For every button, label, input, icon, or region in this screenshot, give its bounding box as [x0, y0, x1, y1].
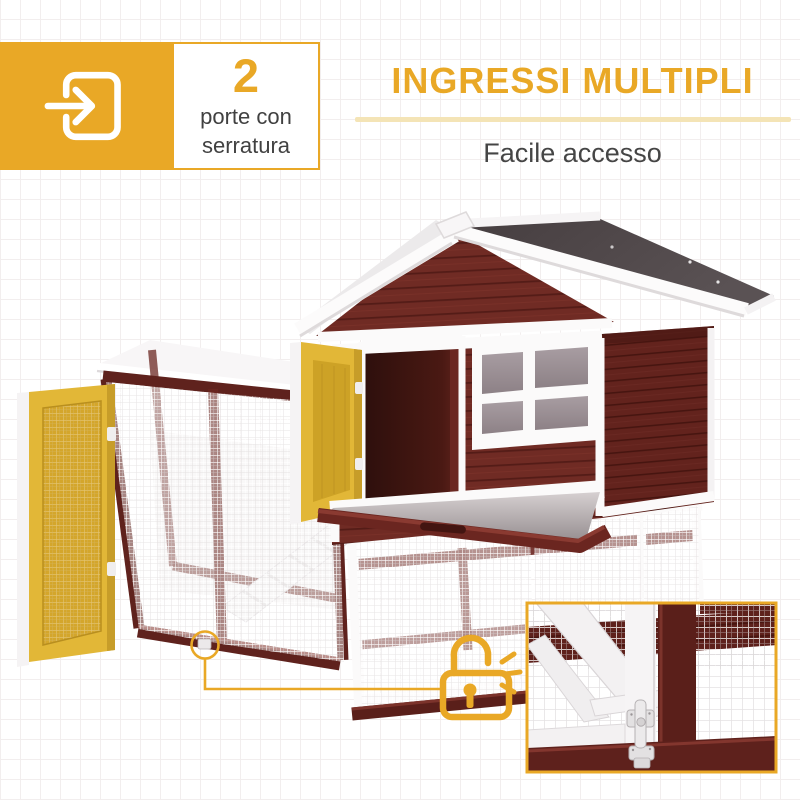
side-wall [602, 326, 714, 518]
hutch-roof [296, 212, 774, 337]
doorway-opening [362, 336, 462, 512]
run-door-hinge [107, 427, 116, 441]
upper-door-yellow-open [290, 342, 363, 524]
product-photo-hutch [0, 0, 800, 800]
run-door-yellow-open [17, 384, 116, 667]
latch-detail-inset [527, 603, 777, 773]
run-door-latch [198, 639, 211, 649]
product-feature-card: 2 porte con serratura INGRESSI MULTIPLI … [0, 0, 800, 800]
run-door-hinge [107, 562, 116, 576]
hutch-window [472, 336, 598, 450]
